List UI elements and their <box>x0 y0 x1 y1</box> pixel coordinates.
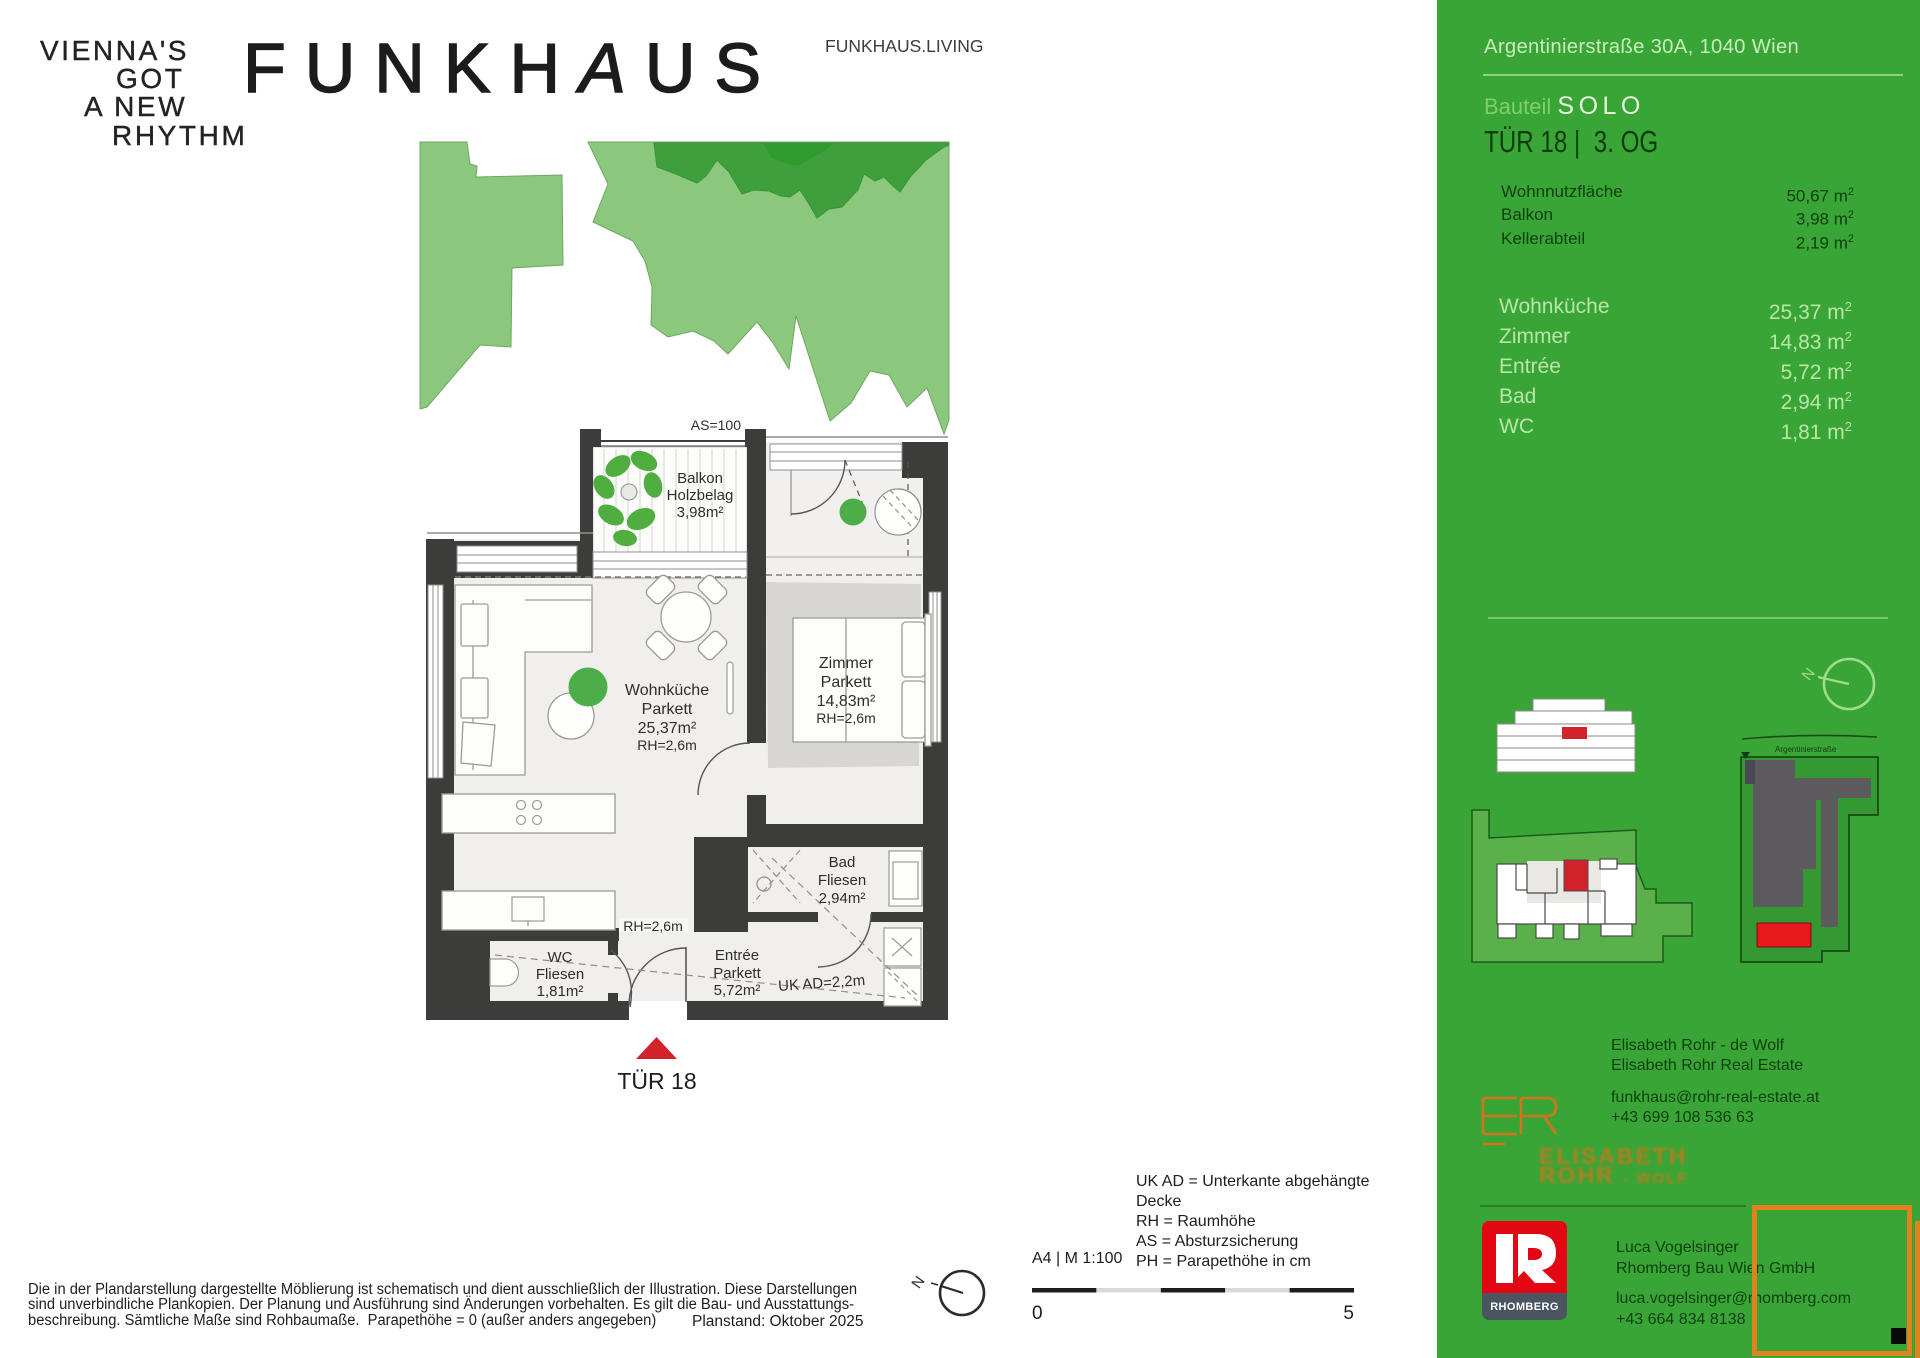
svg-text:Parkett: Parkett <box>713 965 761 982</box>
svg-text:Fliesen: Fliesen <box>536 966 584 983</box>
svg-text:1,81m²: 1,81m² <box>537 983 584 1000</box>
svg-text:5: 5 <box>1343 1303 1354 1324</box>
svg-text:0: 0 <box>1032 1303 1043 1324</box>
svg-text:14,83m²: 14,83m² <box>817 693 876 710</box>
svg-text:25,37m²: 25,37m² <box>638 720 697 737</box>
svg-text:Wohnküche: Wohnküche <box>625 682 709 699</box>
svg-text:N: N <box>1799 665 1819 684</box>
svg-text:Argentinierstraße: Argentinierstraße <box>1775 745 1837 754</box>
svg-text:N: N <box>908 1273 928 1292</box>
svg-text:5,72m²: 5,72m² <box>714 982 761 999</box>
svg-text:Fliesen: Fliesen <box>818 872 866 889</box>
svg-text:RH=2,6m: RH=2,6m <box>623 918 683 934</box>
svg-text:Parkett: Parkett <box>642 701 693 718</box>
svg-text:Bad: Bad <box>829 854 856 871</box>
svg-text:3,98m²: 3,98m² <box>677 504 724 521</box>
svg-text:TÜR 18: TÜR 18 <box>617 1068 696 1094</box>
svg-text:Zimmer: Zimmer <box>819 655 874 672</box>
svg-text:Parkett: Parkett <box>821 674 872 691</box>
svg-text:RH=2,6m: RH=2,6m <box>816 710 876 726</box>
svg-text:Balkon: Balkon <box>677 470 723 487</box>
svg-text:WC: WC <box>548 949 573 966</box>
svg-text:AS=100: AS=100 <box>691 417 741 433</box>
svg-text:RH=2,6m: RH=2,6m <box>637 737 697 753</box>
svg-text:2,94m²: 2,94m² <box>819 890 866 907</box>
svg-text:Holzbelag: Holzbelag <box>667 487 734 504</box>
svg-text:Entrée: Entrée <box>715 947 759 964</box>
